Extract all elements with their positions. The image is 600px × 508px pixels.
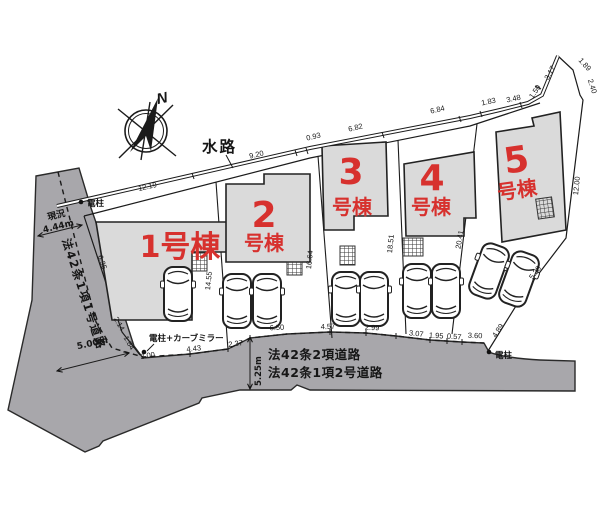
pole-label-southeast: 電柱: [495, 350, 513, 361]
east-dim-5: 4.89: [490, 322, 506, 339]
pole-label-northwest: 電柱: [87, 198, 105, 209]
frontage-dim-1: 4.43: [186, 343, 201, 353]
waterway-dim-7: 3.48: [505, 93, 521, 105]
porch-hatch-5: [536, 197, 555, 219]
frontage-dim-9: 3.60: [468, 331, 483, 341]
waterway-label: 水路: [202, 137, 237, 156]
porch-hatch-3: [340, 246, 355, 265]
boundary-dim-4-5: 20.41: [453, 230, 465, 250]
frontage-dim-8: 0.57: [447, 332, 462, 342]
car-icon: [220, 274, 255, 328]
waterway-dim-3: 0.93: [305, 131, 321, 143]
waterway-dim-5: 6.84: [429, 104, 445, 116]
frontage-dim-4: 4.57: [320, 322, 335, 332]
waterway-dim-6: 1.83: [480, 96, 496, 108]
lot2-suffix: 号棟: [244, 231, 285, 255]
waterway-dim-1: 12.19: [137, 180, 157, 193]
car-icon: [250, 274, 285, 328]
lot4-number: 4: [419, 158, 444, 199]
south-road-width: 5.25m: [254, 356, 264, 386]
south-road-name-1: 法42条2項道路: [268, 347, 361, 362]
frontage-dim-6: 3.07: [409, 328, 424, 338]
utility-pole-icon: [79, 200, 84, 205]
car-icon: [400, 264, 435, 318]
boundary-dim-1-2: 14.55: [203, 271, 214, 291]
lot3-number: 3: [338, 152, 363, 193]
car-icon: [329, 272, 364, 326]
lot1-label: 1号棟: [140, 230, 222, 265]
car-icon: [161, 267, 196, 321]
lot2-number: 2: [251, 195, 276, 236]
east-dim-3: 12.00: [571, 176, 582, 196]
east-dim-2: 2.40: [586, 78, 599, 95]
boundary-dim-3-4: 18.51: [385, 234, 396, 254]
boundary-dim-2-3: 16.64: [304, 250, 315, 270]
utility-pole-icon: [487, 350, 492, 355]
car-icon: [357, 272, 392, 326]
lot3-suffix: 号棟: [332, 195, 373, 219]
compass-north-label: N: [155, 89, 170, 108]
frontage-dim-3: 6.50: [269, 323, 284, 333]
east-dim-1: 1.89: [577, 56, 593, 73]
lot4-suffix: 号棟: [411, 195, 452, 219]
porch-hatch-2: [287, 262, 302, 275]
site-plan: N 水路 12.19 9.20 0.93 6.82 6.84 1.83 3.48…: [0, 0, 600, 508]
frontage-dim-5: 2.99: [365, 323, 380, 333]
porch-hatch-4: [403, 238, 423, 256]
compass-icon: [118, 98, 176, 160]
pole-label-corner: 電柱+カーブミラー: [149, 333, 224, 344]
site-plan-drawing: N 水路 12.19 9.20 0.93 6.82 6.84 1.83 3.48…: [0, 0, 600, 508]
frontage-dim-7: 1.95: [429, 331, 444, 341]
south-road-name-2: 法42条1項2号道路: [268, 365, 383, 380]
car-icon: [429, 264, 464, 318]
waterway-dim-4: 6.82: [347, 122, 363, 134]
